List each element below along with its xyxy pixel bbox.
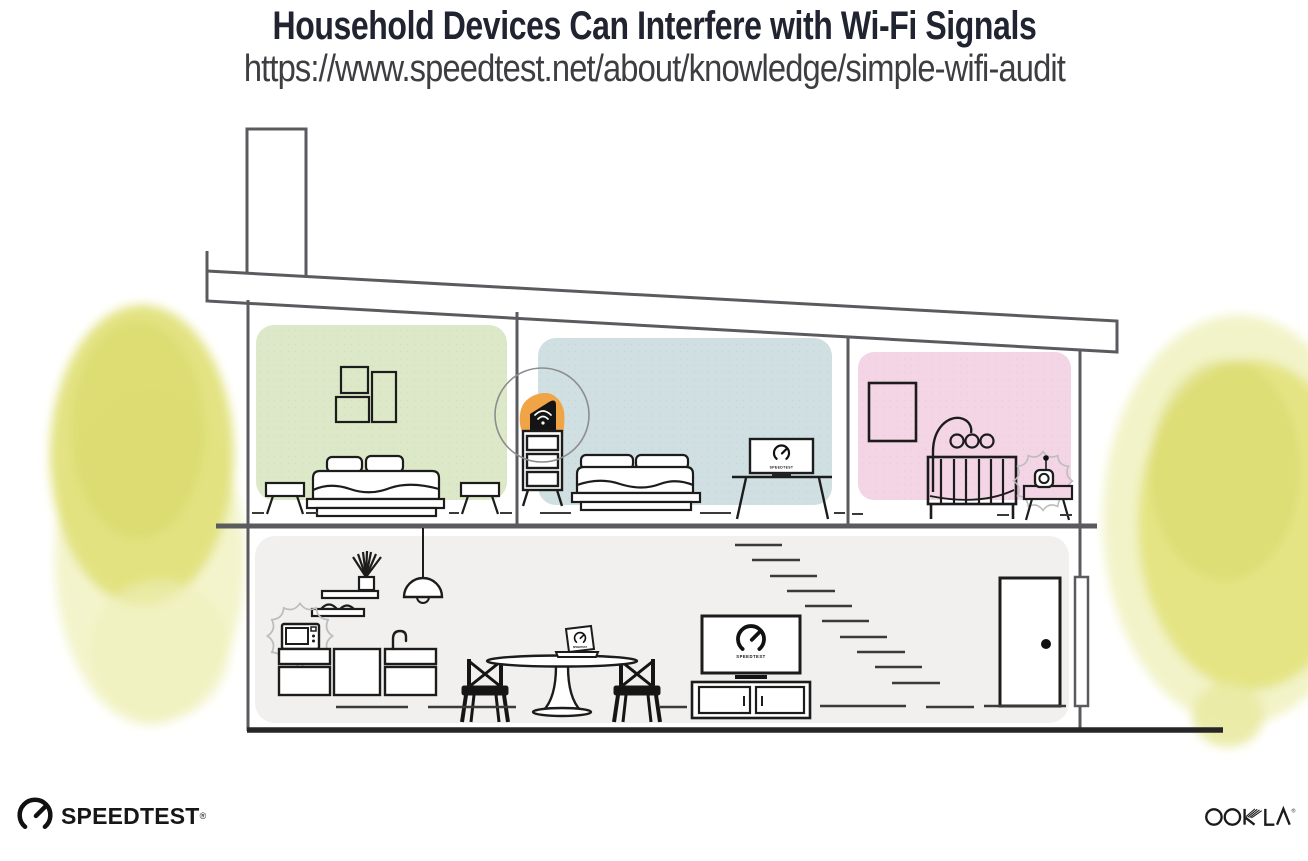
media-console [692,682,810,718]
kitchen-counter [279,649,436,695]
bed-middle [572,455,700,510]
tree-right [1103,315,1308,747]
speedtest-logo: SPEEDTEST® [16,798,206,834]
infographic-page: { "header": { "title": "Household Device… [0,0,1308,861]
baseboard-dashes [852,514,1072,515]
tv-living-room: SPEEDTEST [702,616,800,679]
front-door [1000,578,1060,706]
speedtest-gauge-icon [16,797,54,835]
door-knob [1041,639,1051,649]
antenna-tip [1043,455,1049,461]
registered-mark: ® [200,811,207,821]
house-illustration: SPEEDTEST [0,0,1308,861]
speedtest-wordmark: SPEEDTEST [61,803,200,830]
media-center: SPEEDTEST [692,616,810,718]
tv-bedroom: SPEEDTEST [750,439,813,477]
laptop-screen-label: SPEEDTEST [573,646,588,649]
microwave [282,624,319,649]
tree-left [50,305,245,725]
chimney [247,129,306,281]
downspout [1075,577,1088,706]
tv-living-screen-label: SPEEDTEST [736,654,765,659]
tv-bedroom-screen-label: SPEEDTEST [770,466,794,470]
ookla-logo: ® [1204,804,1296,835]
ookla-wordmark: ® [1204,804,1296,830]
registered-mark: ® [1291,807,1295,814]
